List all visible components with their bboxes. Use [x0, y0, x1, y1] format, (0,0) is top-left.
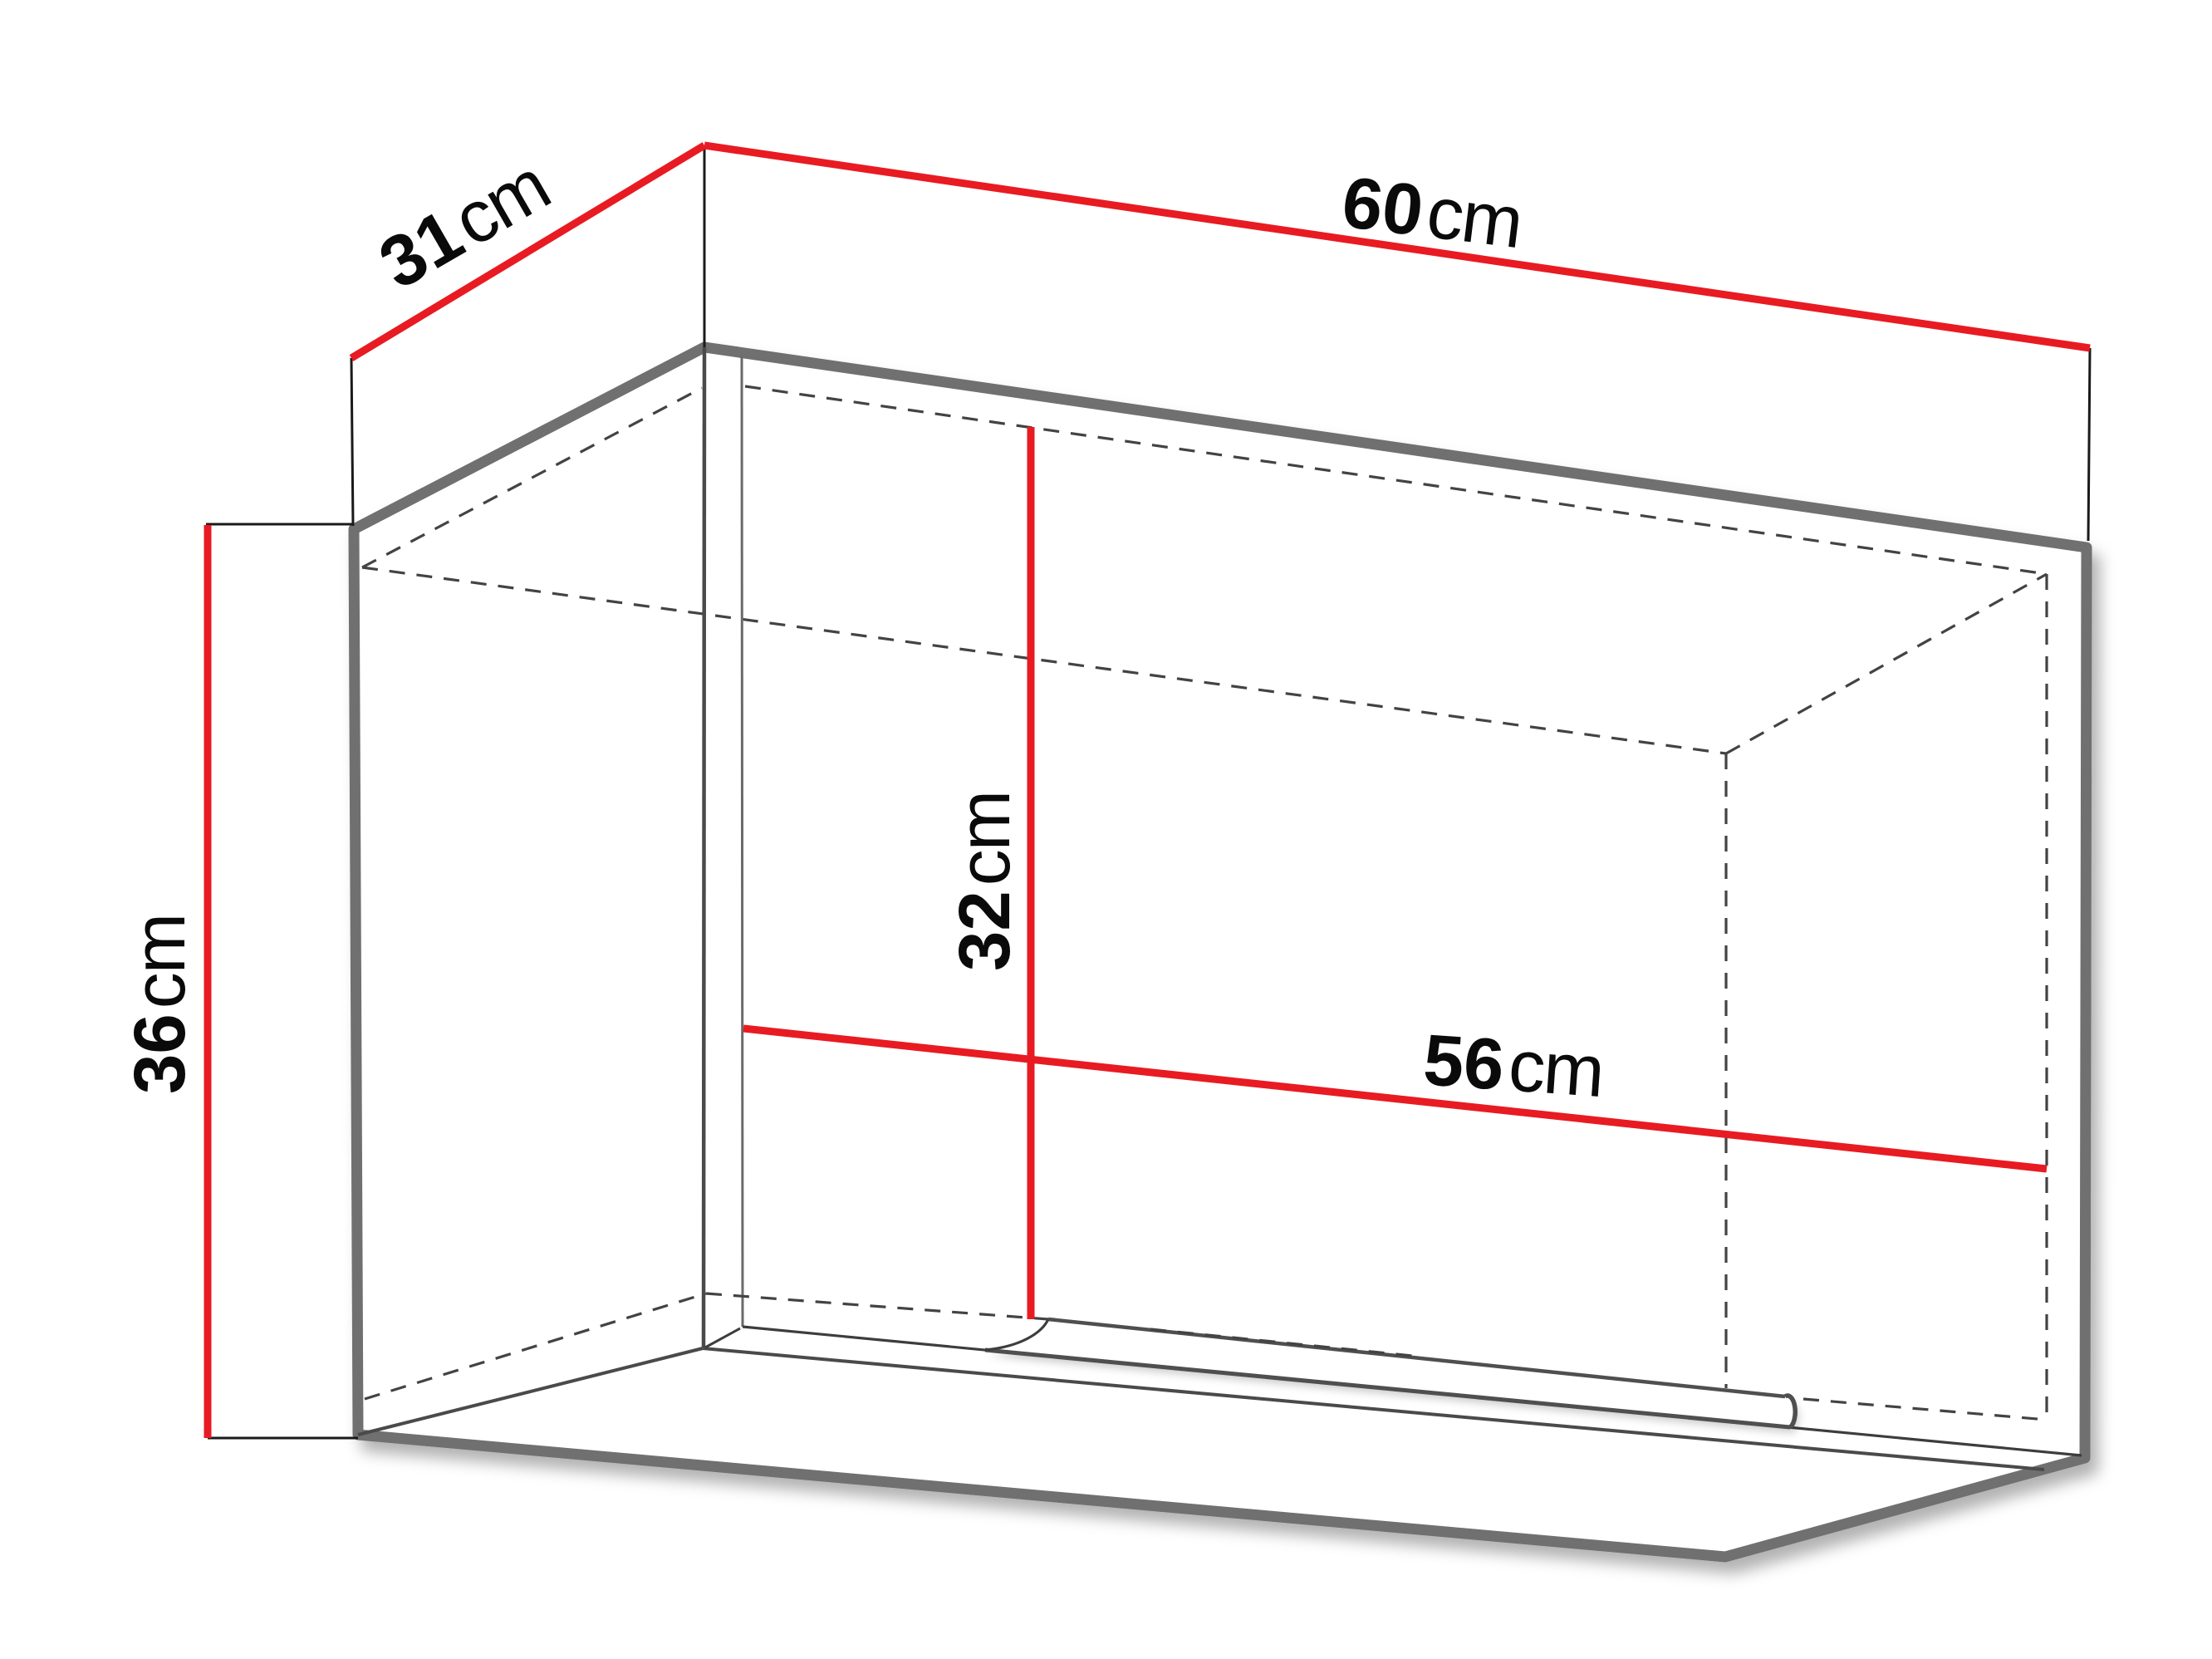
svg-text:56cm: 56cm — [1421, 1018, 1606, 1112]
svg-text:32cm: 32cm — [943, 792, 1025, 971]
svg-text:36cm: 36cm — [118, 915, 200, 1094]
